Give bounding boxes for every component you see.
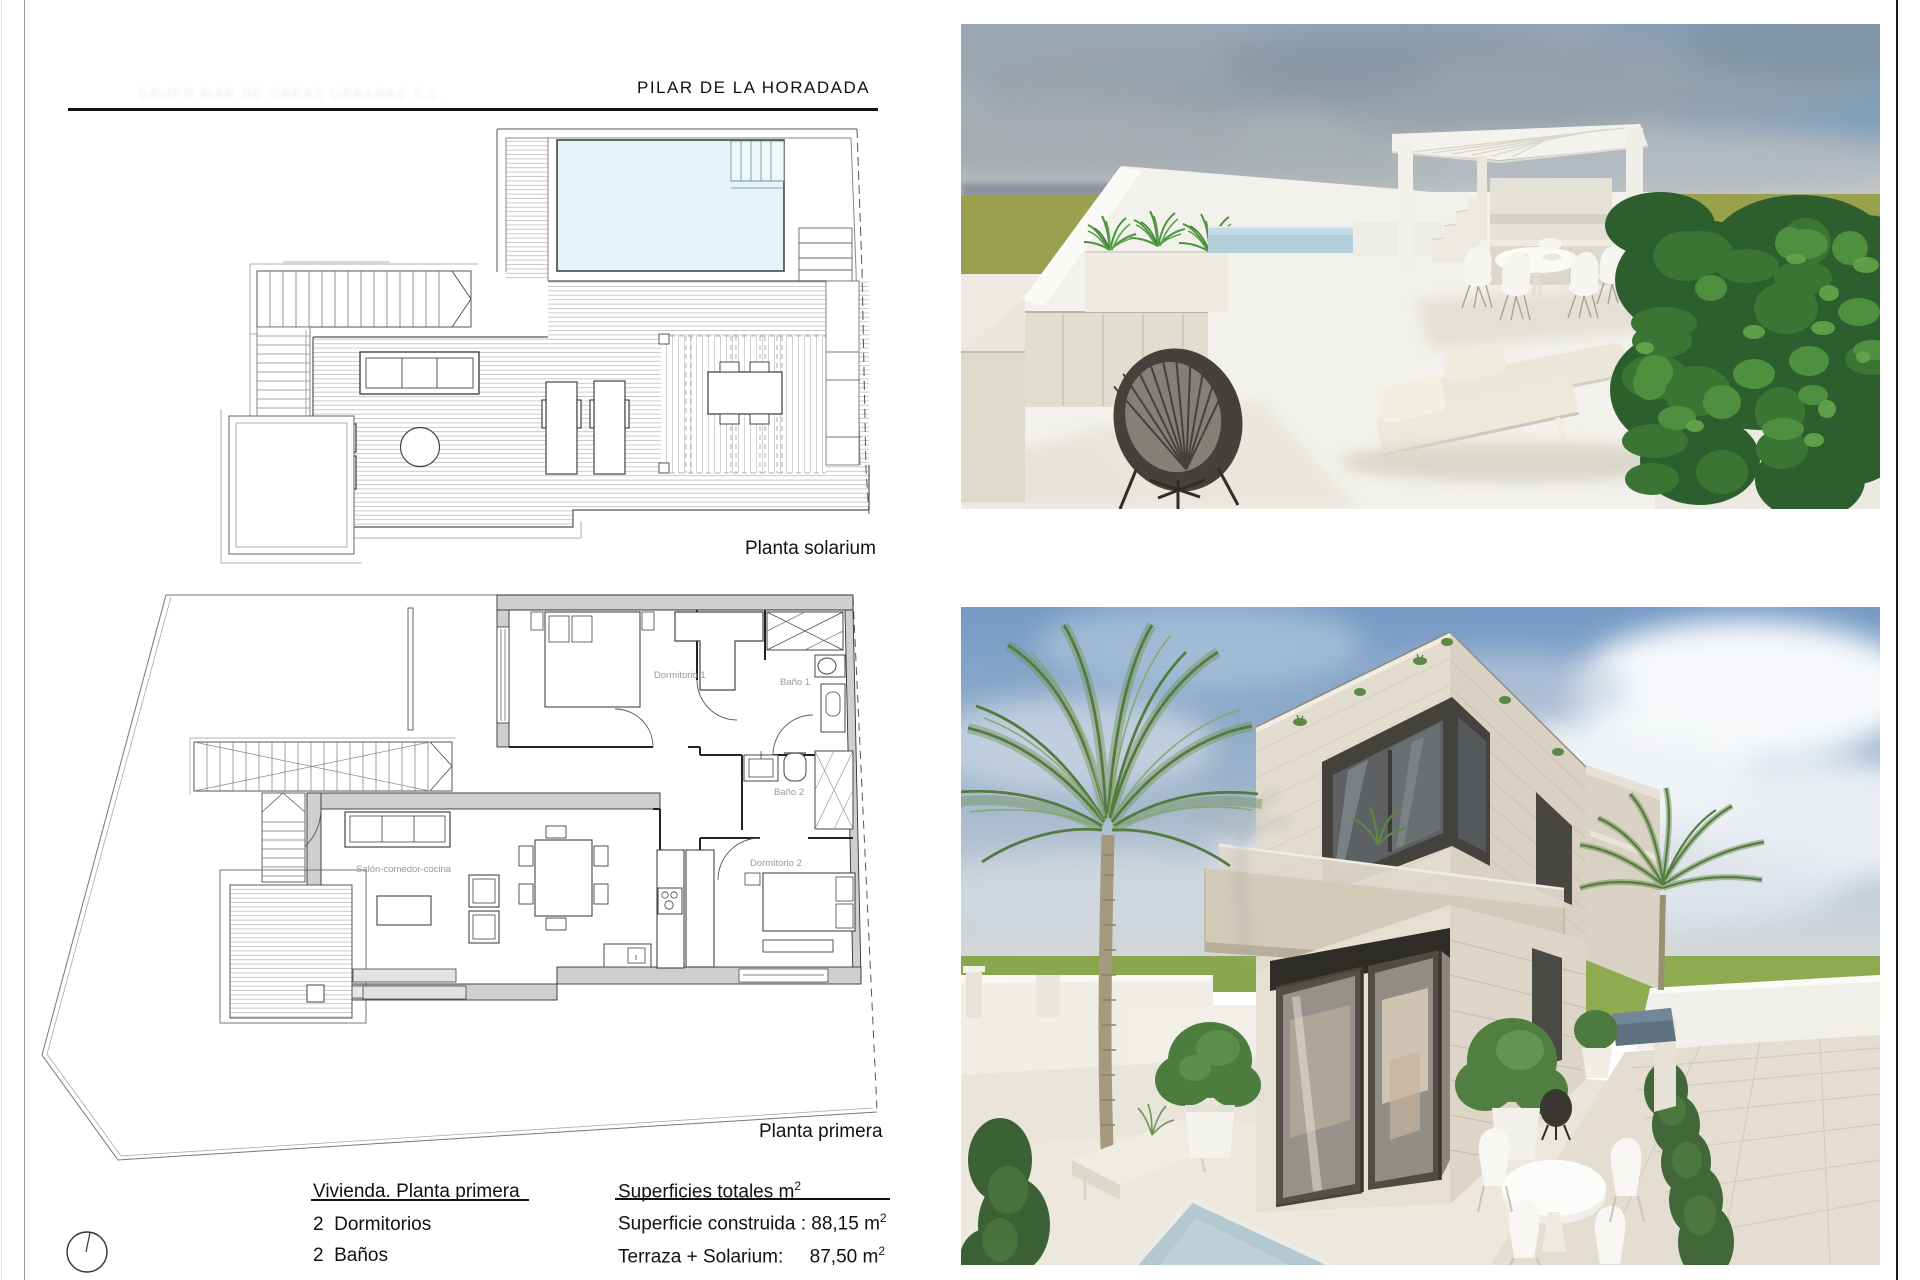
svg-text:Baño 2: Baño 2 <box>774 787 804 798</box>
svg-text:Salón-comedor-cocina: Salón-comedor-cocina <box>356 864 452 875</box>
svg-text:Dormitorio 1: Dormitorio 1 <box>654 670 706 681</box>
svg-text:Baño 1: Baño 1 <box>780 677 810 688</box>
svg-text:Dormitorio 2: Dormitorio 2 <box>750 858 802 869</box>
